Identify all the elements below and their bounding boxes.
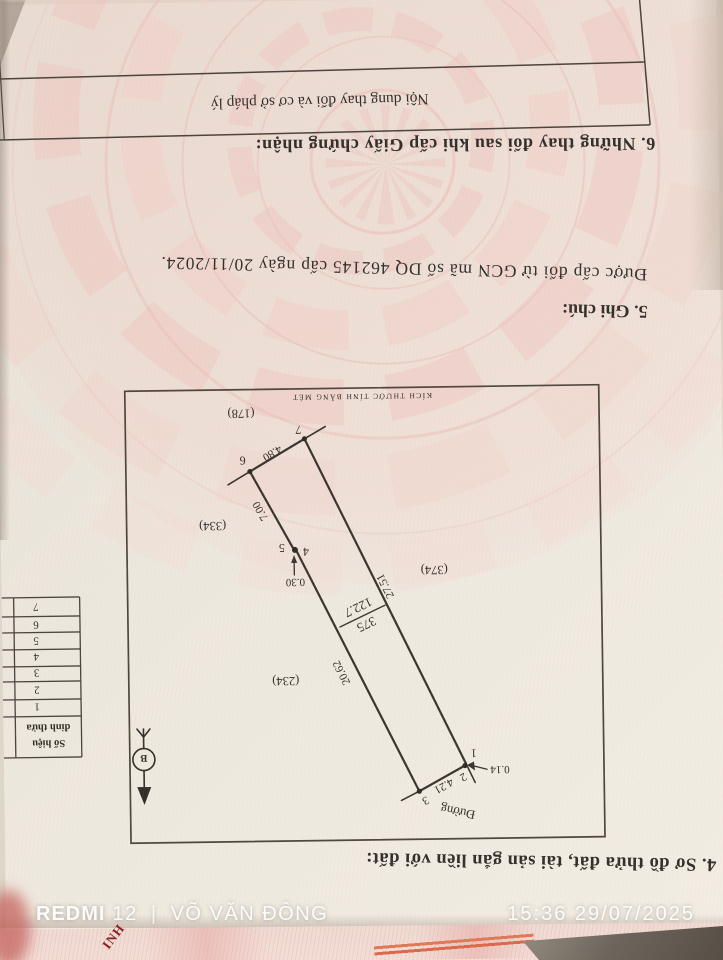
vertex-table-row: 5 xyxy=(33,635,39,647)
neighbor-label-334: (334) xyxy=(199,519,226,533)
right-edge-shadow xyxy=(689,0,723,290)
watermark-separator: | xyxy=(145,903,164,925)
parcel-id-label: 375 122.7 xyxy=(333,590,393,642)
road-label: Đường xyxy=(439,801,477,822)
vertex-table-header-2: đỉnh thửa xyxy=(26,721,71,733)
vertex-table-row: 3 xyxy=(33,667,39,679)
edge-length-4.80: 4.80 xyxy=(260,443,284,464)
neighbor-label-178: (178) xyxy=(227,406,254,420)
edge-length-4.21: 4.21 xyxy=(432,775,456,795)
vertex-table-text: Số hiệu đỉnh thửa 1 2 3 4 5 6 7 xyxy=(24,600,71,749)
vertex-label-6: 6 xyxy=(240,454,246,468)
watermark-device: REDMI xyxy=(36,903,105,925)
section-4-heading: 4. Sơ đồ thửa đất, tài sản gắn liền với … xyxy=(365,848,716,874)
watermark-device-owner: REDMI 12 | VÕ VĂN ĐÔNG xyxy=(36,903,328,926)
edge-length-27.51: 27.51 xyxy=(374,572,396,601)
svg-text:0.14: 0.14 xyxy=(490,763,510,775)
map-border xyxy=(125,385,605,844)
vertex-table-row: 2 xyxy=(34,684,40,696)
section-5-heading: 5. Ghi chú: xyxy=(562,300,648,322)
vertex-table-row: 4 xyxy=(33,651,39,663)
vertex-label-1: 1 xyxy=(471,746,477,760)
parcel-polygon xyxy=(249,437,466,794)
vertex-dots xyxy=(247,434,468,796)
vertex-table-row: 1 xyxy=(34,701,40,713)
edge-length-20.62: 20.62 xyxy=(331,658,353,687)
edge-length-7.00: 7.00 xyxy=(250,499,271,523)
section-6-col-header: Nội dung thay đổi và cơ sở pháp lý xyxy=(210,90,428,112)
section-6-table xyxy=(0,0,650,140)
neighbor-label-374: (374) xyxy=(421,563,448,577)
svg-text:0.30: 0.30 xyxy=(285,576,305,588)
vertex-label-4: 4 xyxy=(303,545,309,559)
north-arrow-icon xyxy=(132,729,155,805)
vertex-label-5: 5 xyxy=(279,541,285,555)
neighbor-label-234: (234) xyxy=(272,674,299,688)
vertex-table xyxy=(2,597,82,758)
section-6-heading: 6. Những thay đổi sau khi cấp Giấy chứng… xyxy=(255,134,655,156)
callout-0.14: 0.14 xyxy=(467,761,510,776)
camera-watermark: REDMI 12 | VÕ VĂN ĐÔNG 15:36 29/07/2025 xyxy=(0,901,723,931)
vertex-table-header-1: Số hiệu xyxy=(32,737,65,748)
parcel-number-label: 375 xyxy=(355,614,379,636)
map-scale-note: KÍCH THƯỚC TÍNH BẰNG MÉT xyxy=(292,391,433,403)
watermark-timestamp: 15:36 29/07/2025 xyxy=(507,903,695,926)
vertex-label-3: 3 xyxy=(420,793,431,806)
parcel-map: 1 2 3 4 5 6 7 4.21 20.62 7.00 4.80 27.51… xyxy=(125,385,605,844)
left-edge-shadow xyxy=(0,0,10,540)
boundary-stubs xyxy=(227,424,475,802)
watermark-owner: VÕ VĂN ĐÔNG xyxy=(171,903,329,925)
north-label: B xyxy=(140,752,147,763)
vertex-table-row: 7 xyxy=(32,601,38,613)
camera-photo: 4. Sơ đồ thửa đất, tài sản gắn liền với … xyxy=(0,0,723,960)
vertex-label-2: 2 xyxy=(457,770,468,783)
watermark-model: 12 xyxy=(113,903,138,925)
vertex-table-row: 6 xyxy=(33,619,39,631)
parcel-area-label: 122.7 xyxy=(341,594,374,620)
certificate-page: 4. Sơ đồ thửa đất, tài sản gắn liền với … xyxy=(0,0,723,960)
vertex-label-7: 7 xyxy=(295,423,301,437)
callout-0.30: 0.30 xyxy=(285,555,305,588)
section-5-note: Được cấp đổi từ GCN mã số DQ 462145 cấp … xyxy=(160,253,647,285)
